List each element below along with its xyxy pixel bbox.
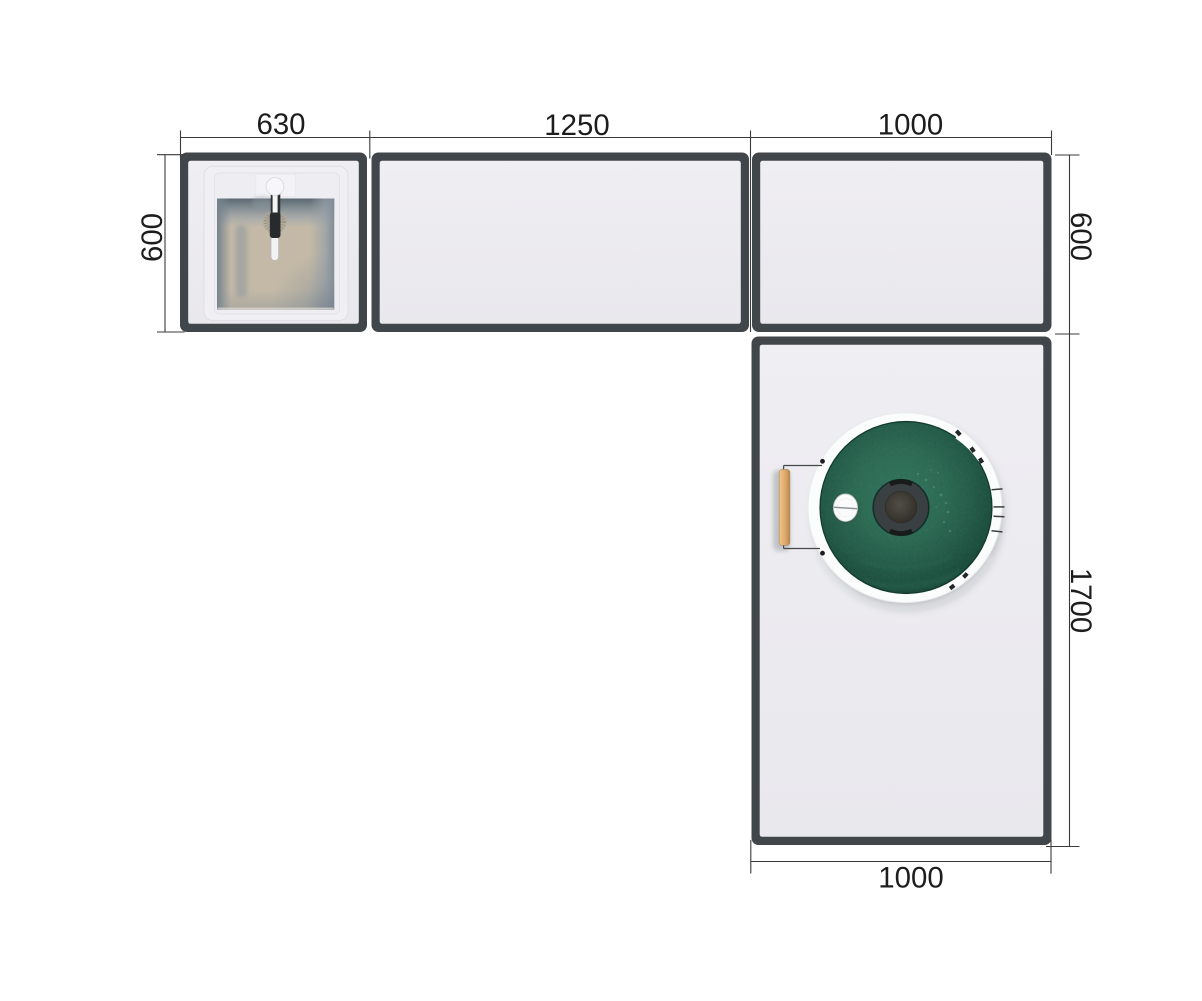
svg-text:1250: 1250 [544,109,609,142]
svg-text:600: 600 [1064,212,1097,261]
svg-text:600: 600 [136,213,169,262]
svg-text:630: 630 [256,108,305,141]
svg-text:1000: 1000 [878,862,943,895]
svg-text:1700: 1700 [1064,568,1097,633]
svg-text:1000: 1000 [878,109,943,142]
